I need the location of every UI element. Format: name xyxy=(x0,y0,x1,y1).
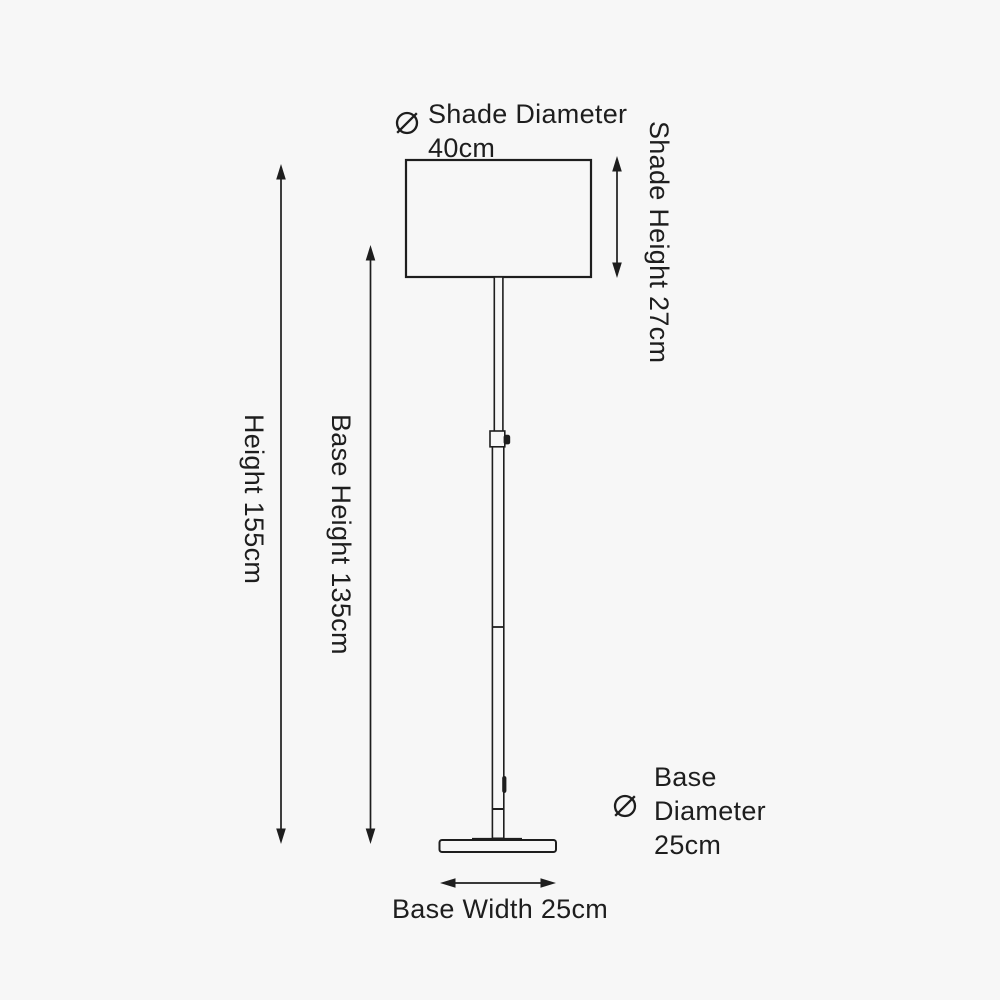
lamp-base-plate xyxy=(440,840,557,852)
base-diameter-line2: Diameter xyxy=(654,794,766,828)
base-diameter-icon xyxy=(615,796,635,816)
base-width-dimension-arrow xyxy=(440,878,556,888)
shade-height-dimension-arrow xyxy=(612,156,622,278)
lamp-switch-icon xyxy=(502,776,506,793)
shade-diameter-value: 40cm xyxy=(428,131,627,165)
lamp-pole-upper xyxy=(494,277,503,432)
height-dimension-arrow xyxy=(276,164,286,844)
shade-diameter-name: Shade Diameter xyxy=(428,97,627,131)
lamp-shade-outline xyxy=(406,160,591,277)
shade-height-label: Shade Height 27cm xyxy=(645,121,672,363)
lamp-adjuster-collar xyxy=(490,431,505,447)
base-height-dimension-arrow xyxy=(366,245,376,844)
base-height-label: Base Height 135cm xyxy=(327,414,354,655)
lamp-adjuster-knob-icon xyxy=(504,435,511,445)
lamp-dimension-diagram: Shade Diameter 40cm Shade Height 27cm He… xyxy=(0,0,1000,1000)
overall-height-label: Height 155cm xyxy=(240,414,267,584)
base-diameter-line3: 25cm xyxy=(654,828,766,862)
shade-diameter-label: Shade Diameter 40cm xyxy=(428,97,627,165)
base-width-label: Base Width 25cm xyxy=(392,896,608,923)
base-diameter-label: Base Diameter 25cm xyxy=(654,760,766,862)
lamp-pole-lower xyxy=(492,447,503,839)
shade-diameter-icon xyxy=(397,113,417,133)
base-diameter-line1: Base xyxy=(654,760,766,794)
